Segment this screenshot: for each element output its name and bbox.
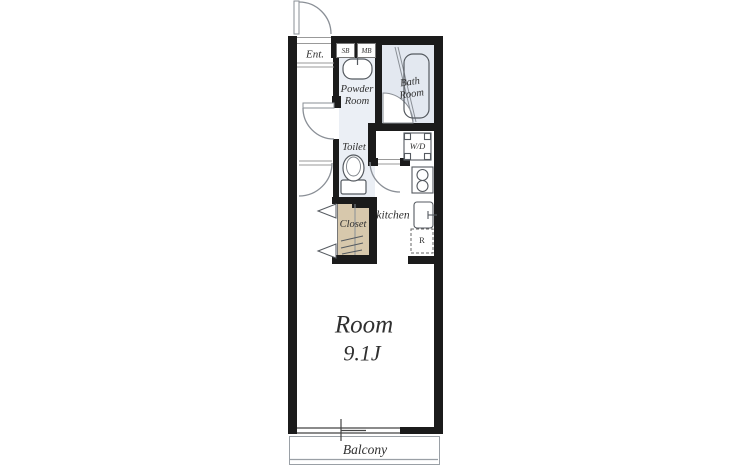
- room-size-label: 9.1J: [343, 340, 380, 365]
- shoe-box: SB: [336, 43, 355, 58]
- closet-label: Closet: [340, 219, 367, 231]
- kitchen-sink-icon: [414, 202, 437, 228]
- window-sliding: [297, 419, 400, 441]
- powder-room-label: Powder Room: [341, 84, 374, 108]
- kitchen-door: [370, 160, 400, 193]
- entrance-step-line: [297, 63, 334, 67]
- entrance-label: Ent.: [306, 49, 324, 62]
- shoe-box-label: SB: [342, 47, 350, 55]
- room-door: [299, 161, 332, 196]
- meter-box-label: MB: [361, 47, 371, 55]
- balcony-label: Balcony: [343, 442, 387, 458]
- room-label: Room: [335, 312, 393, 341]
- toilet-icon: [341, 155, 366, 194]
- meter-box: MB: [357, 43, 376, 58]
- washer-dryer-label: W/D: [410, 142, 426, 152]
- bath-room-label: Bath Room: [397, 75, 425, 102]
- plan-linework: [0, 0, 730, 470]
- kitchen-label: kitchen: [376, 209, 409, 222]
- floor-plan: SB MB Ent. Powder Room Bath Room Toilet …: [0, 0, 730, 470]
- refrigerator-label: R: [419, 236, 425, 246]
- toilet-label: Toilet: [342, 142, 366, 154]
- hall-door-1: [303, 103, 334, 139]
- entrance-door: [294, 1, 331, 44]
- stove-icon: [412, 167, 433, 193]
- sink-icon: [343, 55, 372, 79]
- folding-door-icon: [318, 204, 336, 258]
